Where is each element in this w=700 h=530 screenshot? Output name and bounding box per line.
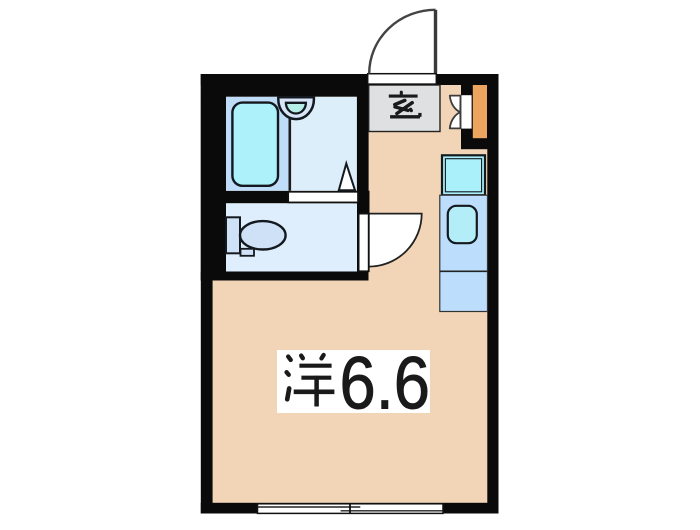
svg-text:6.6: 6.6 (340, 342, 431, 425)
